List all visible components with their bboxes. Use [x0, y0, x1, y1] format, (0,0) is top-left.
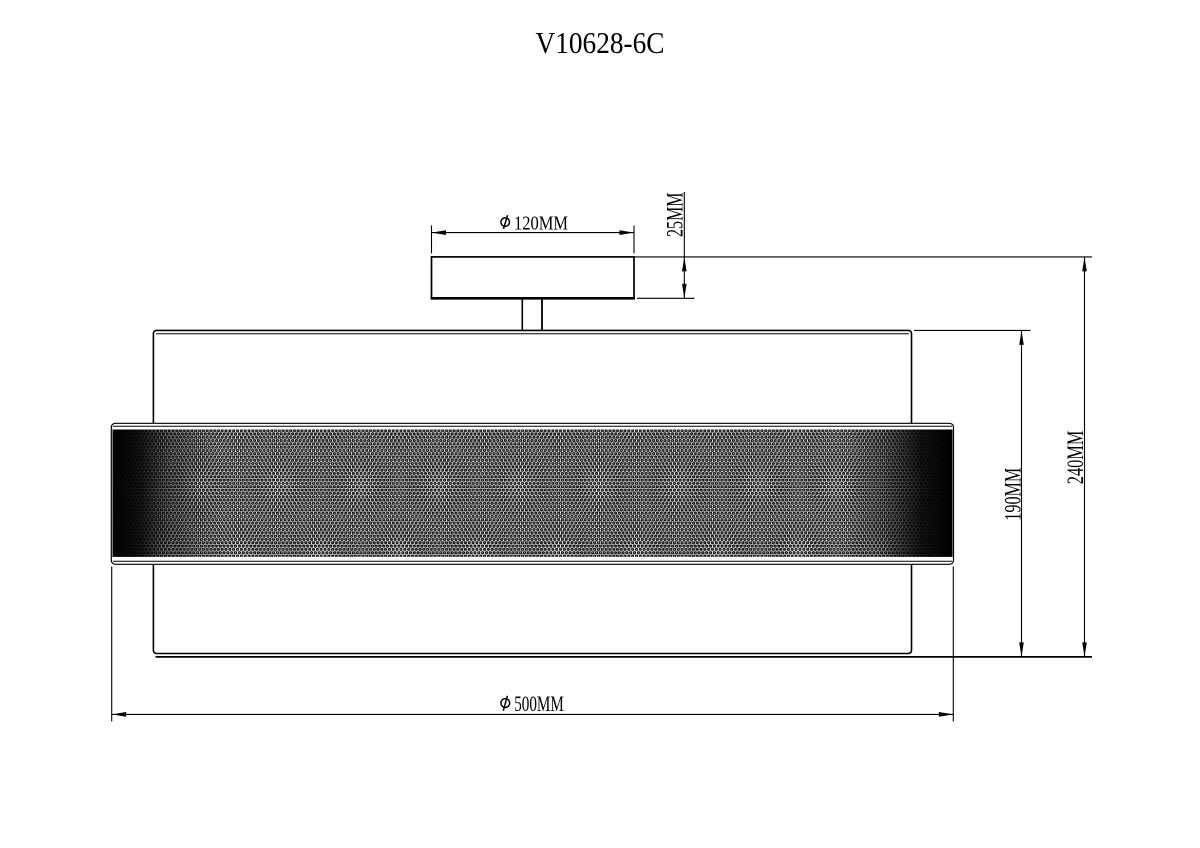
svg-text:190MM: 190MM	[1001, 468, 1026, 521]
svg-text:25MM: 25MM	[663, 192, 688, 237]
svg-text:120MM: 120MM	[514, 212, 568, 234]
svg-text:240MM: 240MM	[1063, 431, 1088, 485]
svg-text:V10628-6C: V10628-6C	[536, 25, 665, 60]
svg-text:500MM: 500MM	[514, 691, 564, 716]
